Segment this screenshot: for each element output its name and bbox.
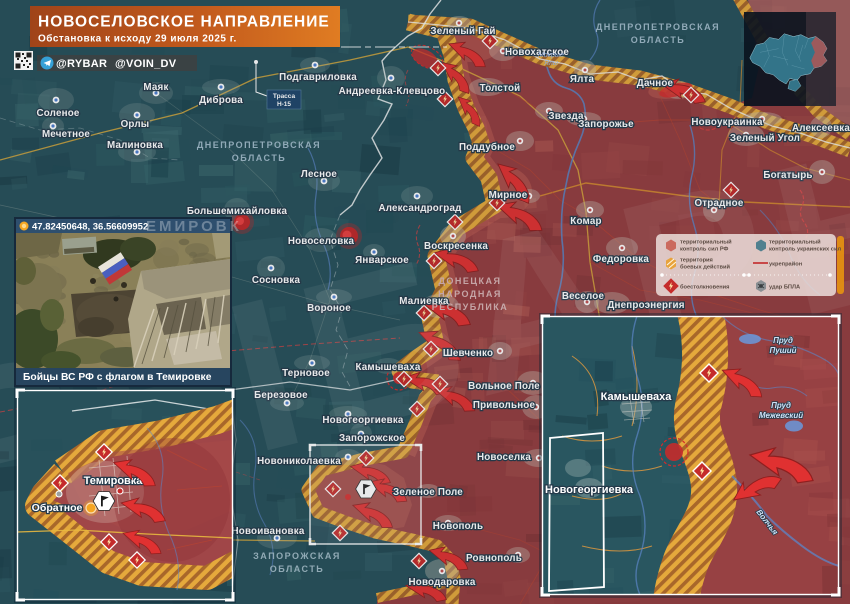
svg-text:Пуший: Пуший: [769, 346, 796, 355]
svg-text:47.82450648, 36.56609952: 47.82450648, 36.56609952: [32, 222, 148, 233]
svg-text:территориальный: территориальный: [680, 239, 732, 246]
svg-text:территория: территория: [680, 258, 713, 264]
svg-text:Бойцы ВС РФ с флагом в Темиров: Бойцы ВС РФ с флагом в Темировке: [23, 371, 212, 383]
svg-text:@VOIN_DV: @VOIN_DV: [115, 58, 177, 70]
svg-text:НОВОСЕЛОВСКОЕ НАПРАВЛЕНИЕ: НОВОСЕЛОВСКОЕ НАПРАВЛЕНИЕ: [38, 14, 330, 31]
svg-text:ЕМИРОВК: ЕМИРОВК: [146, 218, 242, 235]
svg-text:Темировка: Темировка: [84, 475, 144, 487]
svg-text:боевых действий: боевых действий: [680, 264, 730, 271]
svg-text:Пруд: Пруд: [773, 336, 793, 345]
svg-text:Новогеоргиевка: Новогеоргиевка: [545, 484, 634, 496]
svg-text:боестолкновения: боестолкновения: [680, 284, 729, 291]
svg-text:Обстановка к исходу 29 июля 20: Обстановка к исходу 29 июля 2025 г.: [38, 33, 237, 45]
svg-text:Пруд: Пруд: [771, 401, 791, 410]
svg-text:@RYBAR: @RYBAR: [56, 58, 107, 70]
svg-text:Камышеваха: Камышеваха: [601, 391, 673, 403]
svg-text:укрепрайон: укрепрайон: [769, 261, 803, 268]
svg-text:Межевский: Межевский: [759, 411, 803, 420]
svg-text:контроль украинских сил: контроль украинских сил: [769, 247, 841, 253]
svg-text:удар БПЛА: удар БПЛА: [769, 285, 800, 291]
svg-text:Обратное: Обратное: [32, 502, 83, 514]
svg-text:контроль сил РФ: контроль сил РФ: [680, 247, 729, 253]
svg-text:территориальный: территориальный: [769, 239, 821, 246]
